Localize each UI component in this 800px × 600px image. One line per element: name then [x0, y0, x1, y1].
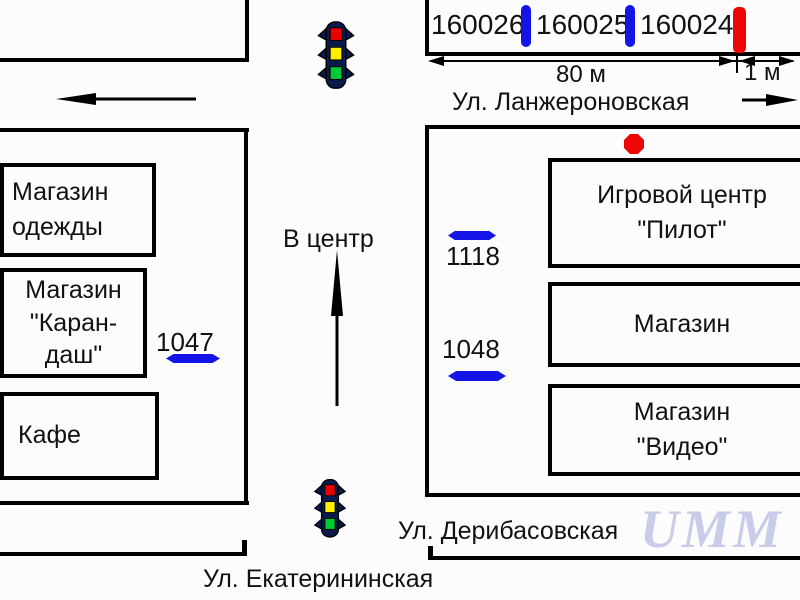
dimension-label-80m: 80 м — [556, 61, 606, 89]
building-cafe: Кафе — [0, 392, 159, 480]
building-label-line: Магазин — [25, 274, 121, 307]
map-canvas: UMM Магазин одежды Магазин "Каран- даш" … — [0, 0, 800, 600]
traffic-light-yellow — [330, 47, 342, 60]
building-label-line: Игровой центр — [597, 178, 767, 214]
block-right-top-edge — [425, 125, 800, 129]
billboard-marker-160025[interactable] — [625, 5, 635, 47]
block-top-right-bottom-edge — [425, 52, 800, 56]
block-top-right-left-edge — [425, 0, 429, 56]
billboard-label-160025[interactable]: 160025 — [536, 9, 629, 41]
traffic-light-green — [330, 67, 342, 80]
traffic-light-icon — [316, 20, 356, 94]
billboard-label-1048[interactable]: 1048 — [442, 334, 500, 365]
building-shop: Магазин — [548, 282, 800, 367]
point-marker-red[interactable] — [624, 134, 644, 154]
billboard-marker-1118[interactable] — [448, 231, 496, 240]
block-left-bottom-edge — [0, 501, 249, 505]
dimension-label-1m: 1 м — [744, 59, 781, 87]
building-label-line: Магазин — [12, 175, 108, 211]
billboard-marker-1048[interactable] — [448, 371, 506, 381]
billboard-label-1118[interactable]: 1118 — [446, 241, 500, 272]
west-arrow-icon — [56, 93, 196, 105]
block-left-top-edge — [0, 128, 249, 132]
street-ekaterininskaya-right-edge — [428, 556, 800, 560]
building-shop-clothes: Магазин одежды — [0, 163, 156, 257]
building-label-line: "Видео" — [637, 430, 728, 466]
building-label-line: "Каран- — [30, 307, 117, 340]
block-right-left-edge — [425, 125, 429, 497]
block-right-bottom-edge — [425, 493, 800, 497]
traffic-light-yellow — [325, 502, 335, 513]
street-label-ekaterininskaya: Ул. Екатерининская — [203, 565, 433, 594]
street-ekaterininskaya-right-corner — [428, 546, 433, 560]
traffic-light-green — [325, 518, 335, 529]
building-game-center-pilot: Игровой центр "Пилот" — [548, 158, 800, 268]
street-ekaterininskaya-left-corner — [242, 540, 247, 554]
direction-to-center-label: В центр — [283, 225, 374, 254]
block-left-right-edge — [244, 128, 248, 505]
building-label-line: даш" — [45, 339, 102, 372]
building-label-line: Магазин — [634, 395, 730, 431]
building-shop-video: Магазин "Видео" — [548, 384, 800, 476]
billboard-marker-160024[interactable] — [733, 7, 746, 53]
watermark: UMM — [640, 498, 784, 560]
traffic-light-icon — [310, 478, 350, 542]
traffic-light-red — [330, 28, 342, 41]
to-center-arrow-icon — [331, 250, 343, 406]
billboard-label-160024[interactable]: 160024 — [640, 9, 733, 41]
street-ekaterininskaya-left-edge — [0, 552, 247, 556]
billboard-label-160026[interactable]: 160026 — [431, 9, 524, 41]
billboard-marker-160026[interactable] — [521, 5, 531, 47]
block-top-left-right-edge — [245, 0, 249, 62]
building-shop-karandash: Магазин "Каран- даш" — [0, 268, 147, 378]
block-top-left-bottom-edge — [0, 58, 249, 62]
building-label-line: "Пилот" — [637, 213, 726, 249]
building-label-line: одежды — [12, 210, 103, 246]
street-label-deribasovskaya: Ул. Дерибасовская — [398, 517, 618, 546]
building-label-line: Магазин — [634, 307, 730, 343]
billboard-label-1047[interactable]: 1047 — [156, 327, 214, 358]
traffic-light-red — [325, 485, 335, 496]
billboard-marker-1047[interactable] — [166, 354, 220, 363]
street-label-lanzheronovskaya: Ул. Ланжероновская — [452, 88, 689, 117]
building-label-line: Кафе — [18, 418, 81, 454]
east-arrow-icon — [742, 94, 798, 106]
